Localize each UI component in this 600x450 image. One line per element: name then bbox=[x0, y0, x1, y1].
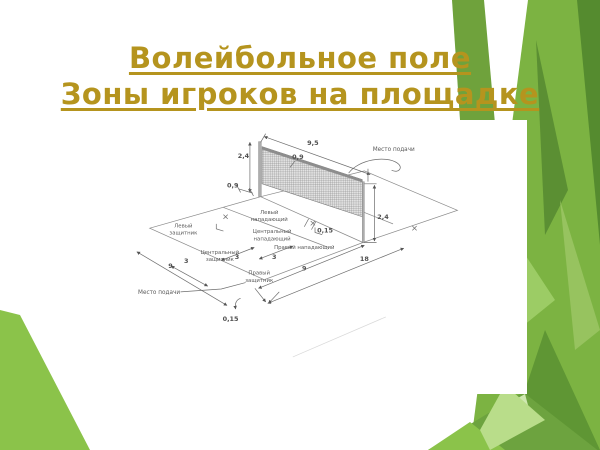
label-serve-spot-bottom: Место подачи bbox=[138, 290, 180, 296]
net-post-left bbox=[258, 142, 261, 197]
dim-line-width-mid: 0,15 bbox=[317, 226, 333, 234]
label-right-defender-2: защитник bbox=[245, 278, 274, 284]
dim-zone-3-a: 3 bbox=[184, 257, 188, 265]
presentation-slide: Волейбольное поле Зоны игроков на площад… bbox=[0, 0, 600, 450]
volleyball-court-diagram: 2,4 9,5 0,9 0,9 2,4 0,15 0,15 3 3 3 9 9 … bbox=[60, 128, 540, 450]
dim-line-court-18 bbox=[268, 248, 404, 303]
tick-line-width-bottom bbox=[235, 298, 240, 309]
dim-half-9-right: 9 bbox=[302, 264, 307, 272]
label-left-defender-2: защитник bbox=[169, 231, 198, 237]
label-center-attacker-1: Центральный bbox=[253, 228, 292, 235]
dim-line-half-9-right bbox=[258, 245, 364, 288]
dim-post-offset-ticks bbox=[236, 185, 253, 196]
label-center-attacker-2: нападающий bbox=[254, 235, 291, 242]
dim-net-band-height: 0,9 bbox=[292, 153, 304, 161]
net-mesh bbox=[262, 147, 362, 217]
label-center-defender-2: защитник bbox=[206, 257, 235, 263]
net-assembly bbox=[258, 142, 364, 243]
converging-tick-b bbox=[269, 292, 280, 303]
label-left-defender-1: Левый bbox=[174, 222, 192, 229]
dim-line-width-bottom: 0,15 bbox=[223, 315, 239, 323]
label-right-defender-1: Правый bbox=[248, 270, 270, 277]
serve-area-squiggle bbox=[349, 159, 401, 173]
page-title: Волейбольное поле Зоны игроков на площад… bbox=[0, 40, 600, 113]
label-left-attacker-1: Левый bbox=[260, 209, 278, 216]
converging-tick-a bbox=[255, 288, 266, 302]
label-serve-spot-top: Место подачи bbox=[373, 147, 415, 153]
dim-post-height-left: 2,4 bbox=[238, 152, 250, 160]
net-post-right bbox=[362, 182, 364, 243]
dim-net-length: 9,5 bbox=[307, 139, 319, 147]
dim-post-height-right: 2,4 bbox=[377, 213, 389, 221]
page-title-line-2: Зоны игроков на площадке bbox=[0, 76, 600, 112]
dim-half-9-left: 9 bbox=[168, 262, 173, 270]
page-title-line-1: Волейбольное поле bbox=[0, 40, 600, 76]
label-center-defender-1: Центральный bbox=[201, 249, 240, 256]
dim-post-offset: 0,9 bbox=[227, 181, 239, 189]
label-left-attacker-2: нападающий bbox=[251, 216, 288, 223]
page-crease-line bbox=[293, 317, 386, 357]
dim-court-length: 18 bbox=[360, 255, 369, 263]
dim-zone-3-c: 3 bbox=[272, 253, 276, 261]
label-right-attacker: Правый нападающий bbox=[274, 244, 334, 251]
